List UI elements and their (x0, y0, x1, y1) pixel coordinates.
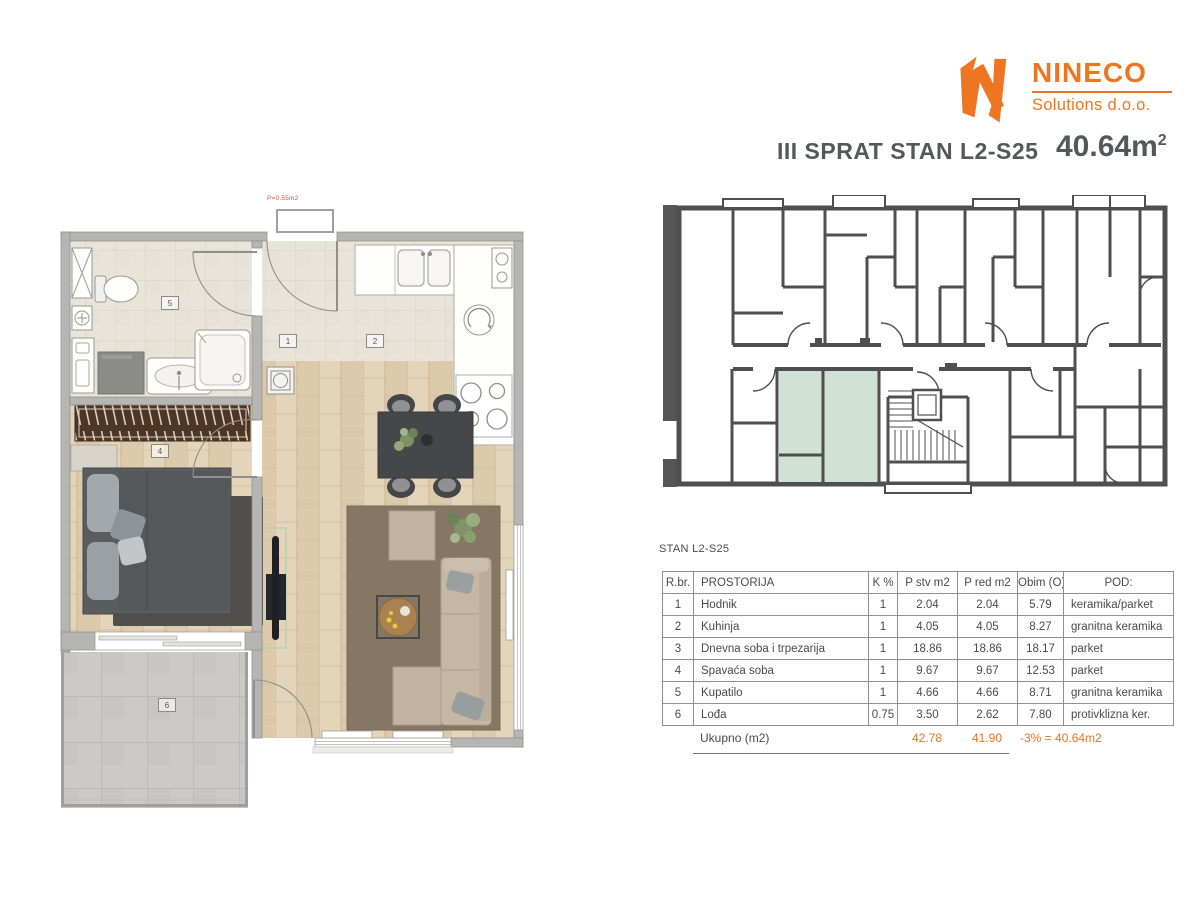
table-row: 5 Kupatilo 1 4.66 4.66 8.71 granitna ker… (663, 682, 1174, 704)
cell-k: 1 (869, 616, 898, 638)
cell-k: 1 (869, 682, 898, 704)
cell-pstv: 2.04 (898, 594, 958, 616)
cell-obim: 8.71 (1018, 682, 1064, 704)
logo-text-block: NINECO Solutions d.o.o. (1032, 58, 1172, 115)
nineco-logo-icon (950, 50, 1030, 124)
table-row: 1 Hodnik 1 2.04 2.04 5.79 keramika/parke… (663, 594, 1174, 616)
radiator (322, 731, 372, 738)
tv-icon (272, 536, 279, 640)
cell-name: Spavaća soba (694, 660, 869, 682)
totals-pstv: 42.78 (897, 731, 957, 745)
brand-subtitle: Solutions d.o.o. (1032, 96, 1172, 115)
page-title: III SPRAT STAN L2-S25 (777, 138, 1038, 165)
cell-pstv: 18.86 (898, 638, 958, 660)
cell-pstv: 9.67 (898, 660, 958, 682)
shaft-area-label: P=0.55m2 (267, 195, 298, 202)
cell-pod: keramika/parket (1064, 594, 1174, 616)
bench (71, 445, 117, 471)
cell-num: 1 (663, 594, 694, 616)
cell-k: 1 (869, 660, 898, 682)
cell-num: 5 (663, 682, 694, 704)
cell-pred: 4.05 (958, 616, 1018, 638)
table-row: 3 Dnevna soba i trpezarija 1 18.86 18.86… (663, 638, 1174, 660)
cell-num: 6 (663, 704, 694, 726)
area-superscript: 2 (1158, 132, 1167, 149)
cell-obim: 5.79 (1018, 594, 1064, 616)
ottoman (389, 511, 435, 560)
brand-name: NINECO (1032, 58, 1172, 93)
cell-pred: 2.04 (958, 594, 1018, 616)
room-label-lodja: 6 (158, 698, 176, 712)
bedroom (71, 405, 263, 626)
cell-name: Dnevna soba i trpezarija (694, 638, 869, 660)
cell-name: Kupatilo (694, 682, 869, 704)
cell-name: Kuhinja (694, 616, 869, 638)
area-value: 40.64m (1056, 130, 1158, 163)
table-header-row: R.br. PROSTORIJA K % P stv m2 P red m2 O… (663, 572, 1174, 594)
room-label-hodnik: 1 (279, 334, 297, 348)
chaise-ottoman (393, 667, 441, 725)
cell-pstv: 4.66 (898, 682, 958, 704)
sink-basin (398, 250, 424, 286)
apartment-area: 40.64m2 (1056, 130, 1167, 164)
cell-pstv: 4.05 (898, 616, 958, 638)
coffee-table (379, 598, 417, 636)
cell-k: 1 (869, 638, 898, 660)
cell-k: 0.75 (869, 704, 898, 726)
totals-pred: 41.90 (957, 731, 1017, 745)
room-label-kupatilo: 5 (161, 296, 179, 310)
room-table-block: R.br. PROSTORIJA K % P stv m2 P red m2 O… (662, 571, 1173, 752)
cell-name: Lođa (694, 704, 869, 726)
col-pred: P red m2 (958, 572, 1018, 594)
col-k: K % (869, 572, 898, 594)
col-rbr: R.br. (663, 572, 694, 594)
floorplan-sheet: NINECO Solutions d.o.o. III SPRAT STAN L… (0, 0, 1200, 905)
cell-name: Hodnik (694, 594, 869, 616)
installation-shaft (277, 210, 333, 232)
totals-note: -3% = 40.64m2 (1020, 731, 1102, 745)
col-pod: POD: (1064, 572, 1174, 594)
building-key-plan (655, 195, 1175, 495)
cell-k: 1 (869, 594, 898, 616)
room-table: R.br. PROSTORIJA K % P stv m2 P red m2 O… (662, 571, 1174, 726)
toilet-icon (104, 276, 138, 302)
table-row: 4 Spavaća soba 1 9.67 9.67 12.53 parket (663, 660, 1174, 682)
table-caption: STAN L2-S25 (659, 543, 729, 555)
col-prostorija: PROSTORIJA (694, 572, 869, 594)
totals-underline (693, 753, 1009, 754)
cell-obim: 12.53 (1018, 660, 1064, 682)
cell-pod: granitna keramika (1064, 682, 1174, 704)
cell-obim: 8.27 (1018, 616, 1064, 638)
cell-pred: 4.66 (958, 682, 1018, 704)
cell-pod: protivklizna ker. (1064, 704, 1174, 726)
cell-num: 3 (663, 638, 694, 660)
cell-pod: parket (1064, 660, 1174, 682)
totals-label: Ukupno (m2) (700, 731, 769, 745)
cell-pod: parket (1064, 638, 1174, 660)
totals-row: Ukupno (m2) 42.78 41.90 -3% = 40.64m2 (662, 726, 1173, 752)
apartment-plan: P=0.55m2 1 2 4 5 6 (55, 190, 530, 815)
table-row: 6 Lođa 0.75 3.50 2.62 7.80 protivklizna … (663, 704, 1174, 726)
room-label-kuhinja: 2 (366, 334, 384, 348)
cell-obim: 18.17 (1018, 638, 1064, 660)
wardrobe (75, 405, 250, 441)
cell-pred: 9.67 (958, 660, 1018, 682)
cell-pred: 18.86 (958, 638, 1018, 660)
cell-pstv: 3.50 (898, 704, 958, 726)
loggia-floor (61, 652, 248, 808)
col-obim: Obim (O) (1018, 572, 1064, 594)
highlighted-unit-l2-s25 (779, 371, 879, 482)
cell-num: 4 (663, 660, 694, 682)
cell-num: 2 (663, 616, 694, 638)
cell-pred: 2.62 (958, 704, 1018, 726)
col-pstv: P stv m2 (898, 572, 958, 594)
cell-pod: granitna keramika (1064, 616, 1174, 638)
cell-obim: 7.80 (1018, 704, 1064, 726)
loggia-slider (95, 632, 245, 650)
room-label-spavaca-soba: 4 (151, 444, 169, 458)
apartment-plan-drawing (55, 190, 530, 815)
table-row: 2 Kuhinja 1 4.05 4.05 8.27 granitna kera… (663, 616, 1174, 638)
